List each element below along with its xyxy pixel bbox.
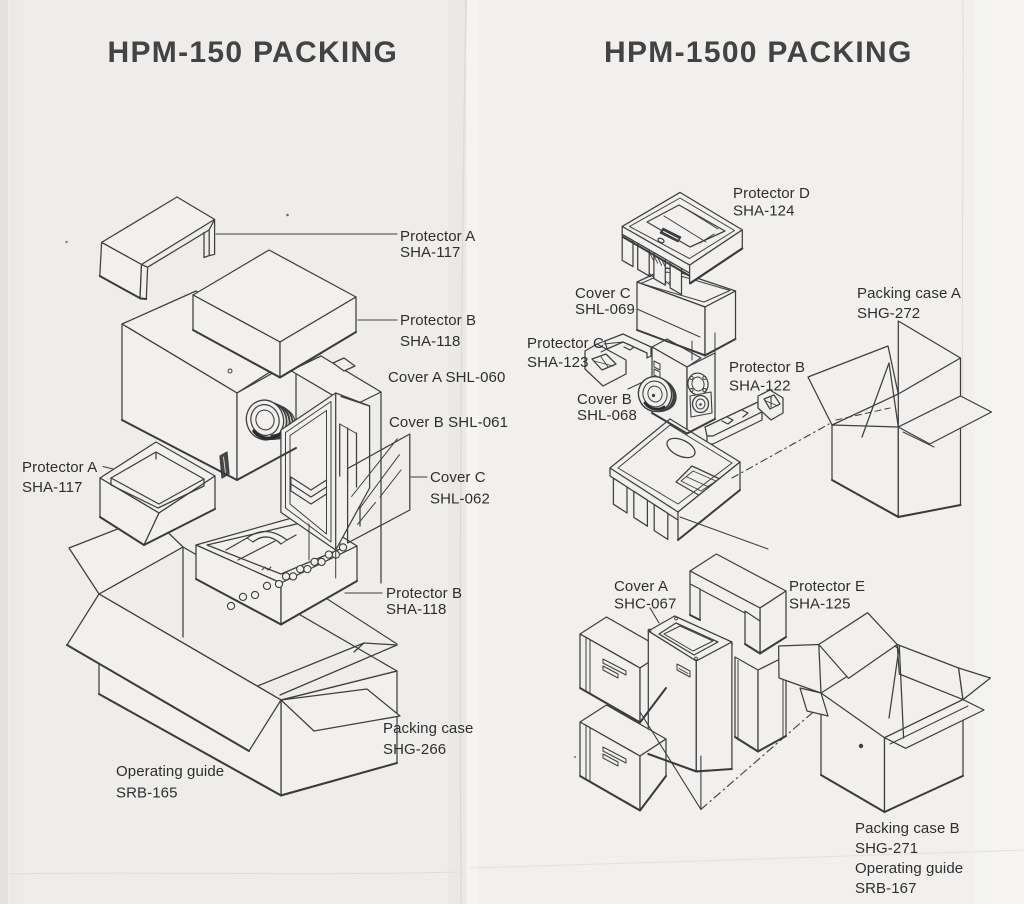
svg-text:SRB-167: SRB-167 [855,880,917,897]
svg-text:SHA-117: SHA-117 [22,479,82,496]
svg-text:SRB-165: SRB-165 [116,785,178,802]
svg-text:SHC-067: SHC-067 [614,596,676,613]
svg-text:Cover B SHL-061: Cover B SHL-061 [389,414,508,431]
svg-text:SHA-124: SHA-124 [733,203,795,220]
svg-text:Cover B: Cover B [577,391,632,408]
svg-text:SHL-068: SHL-068 [577,407,637,424]
svg-text:SHA-118: SHA-118 [400,333,460,350]
svg-text:SHG-272: SHG-272 [857,305,920,322]
svg-text:SHA-123: SHA-123 [527,354,589,371]
svg-text:Protector C: Protector C [527,335,604,352]
svg-text:Cover C: Cover C [575,285,631,302]
svg-text:SHL-062: SHL-062 [430,491,490,508]
svg-text:Operating guide: Operating guide [855,860,963,877]
svg-text:SHA-118: SHA-118 [386,601,446,618]
svg-text:SHG-271: SHG-271 [855,840,918,857]
svg-text:Protector B: Protector B [729,359,805,376]
svg-text:HPM-1500 PACKING: HPM-1500 PACKING [604,36,913,69]
svg-text:SHA-125: SHA-125 [789,596,851,613]
svg-text:Cover A: Cover A [614,578,668,595]
svg-text:Protector A: Protector A [400,228,475,245]
svg-text:Packing case: Packing case [383,720,473,737]
svg-text:Operating guide: Operating guide [116,763,224,780]
svg-text:Protector B: Protector B [386,585,462,602]
svg-text:Cover A SHL-060: Cover A SHL-060 [388,369,505,386]
svg-text:Cover C: Cover C [430,469,486,486]
svg-text:SHL-069: SHL-069 [575,301,635,318]
svg-text:Protector A: Protector A [22,459,97,476]
svg-text:HPM-150 PACKING: HPM-150 PACKING [108,36,399,69]
svg-text:Packing case B: Packing case B [855,820,960,837]
svg-text:Packing case A: Packing case A [857,285,961,302]
svg-text:Protector E: Protector E [789,578,865,595]
svg-text:SHA-117: SHA-117 [400,244,460,261]
svg-text:Protector D: Protector D [733,185,810,202]
svg-text:Protector B: Protector B [400,312,476,329]
svg-text:SHA-122: SHA-122 [729,378,791,395]
svg-text:SHG-266: SHG-266 [383,741,446,758]
